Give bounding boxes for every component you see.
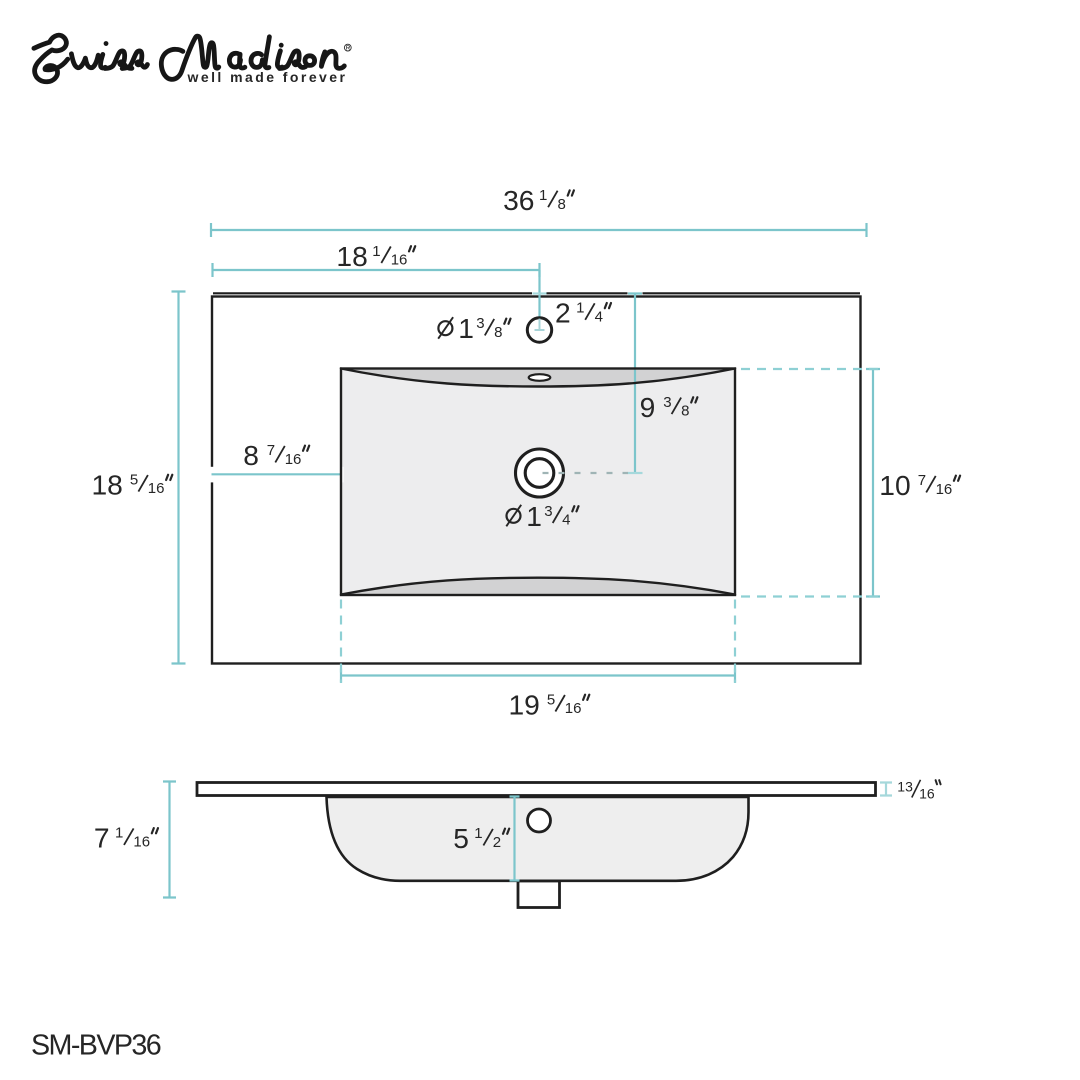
svg-text:16: 16 (133, 834, 150, 851)
svg-text:SM-BVP36: SM-BVP36 (31, 1030, 161, 1062)
svg-text:1: 1 (474, 825, 482, 842)
svg-text:13: 13 (897, 778, 913, 794)
svg-text:16: 16 (148, 480, 165, 497)
svg-text:8: 8 (243, 439, 259, 471)
svg-text:1: 1 (539, 187, 547, 204)
svg-text:5: 5 (547, 691, 555, 708)
svg-text:4: 4 (595, 308, 603, 325)
svg-text:1: 1 (372, 243, 380, 260)
svg-text:5: 5 (453, 822, 469, 854)
svg-text:7: 7 (267, 442, 275, 459)
svg-text:1: 1 (526, 500, 542, 532)
svg-text:8: 8 (681, 403, 689, 420)
svg-text:4: 4 (562, 512, 570, 529)
svg-text:18: 18 (336, 240, 367, 272)
svg-text:7: 7 (918, 472, 926, 489)
svg-text:1: 1 (576, 300, 584, 317)
svg-text:5: 5 (130, 471, 138, 488)
svg-text:18: 18 (92, 468, 123, 500)
svg-text:2: 2 (555, 297, 571, 329)
svg-text:10: 10 (879, 469, 910, 501)
svg-text:9: 9 (640, 391, 656, 423)
svg-text:3: 3 (663, 394, 671, 411)
svg-text:7: 7 (94, 822, 110, 854)
svg-text:3: 3 (476, 315, 484, 332)
svg-text:19: 19 (509, 688, 540, 720)
svg-text:16: 16 (285, 451, 302, 468)
svg-text:8: 8 (494, 324, 502, 341)
svg-text:16: 16 (565, 700, 582, 717)
svg-text:2: 2 (493, 834, 501, 851)
svg-text:8: 8 (558, 196, 566, 213)
svg-text:16: 16 (919, 786, 935, 802)
svg-text:1: 1 (115, 825, 123, 842)
svg-text:36: 36 (503, 184, 534, 216)
svg-text:1: 1 (458, 312, 474, 344)
svg-text:well made forever: well made forever (187, 69, 348, 85)
svg-text:3: 3 (544, 503, 552, 520)
svg-text:16: 16 (936, 481, 953, 498)
svg-text:16: 16 (391, 252, 408, 269)
